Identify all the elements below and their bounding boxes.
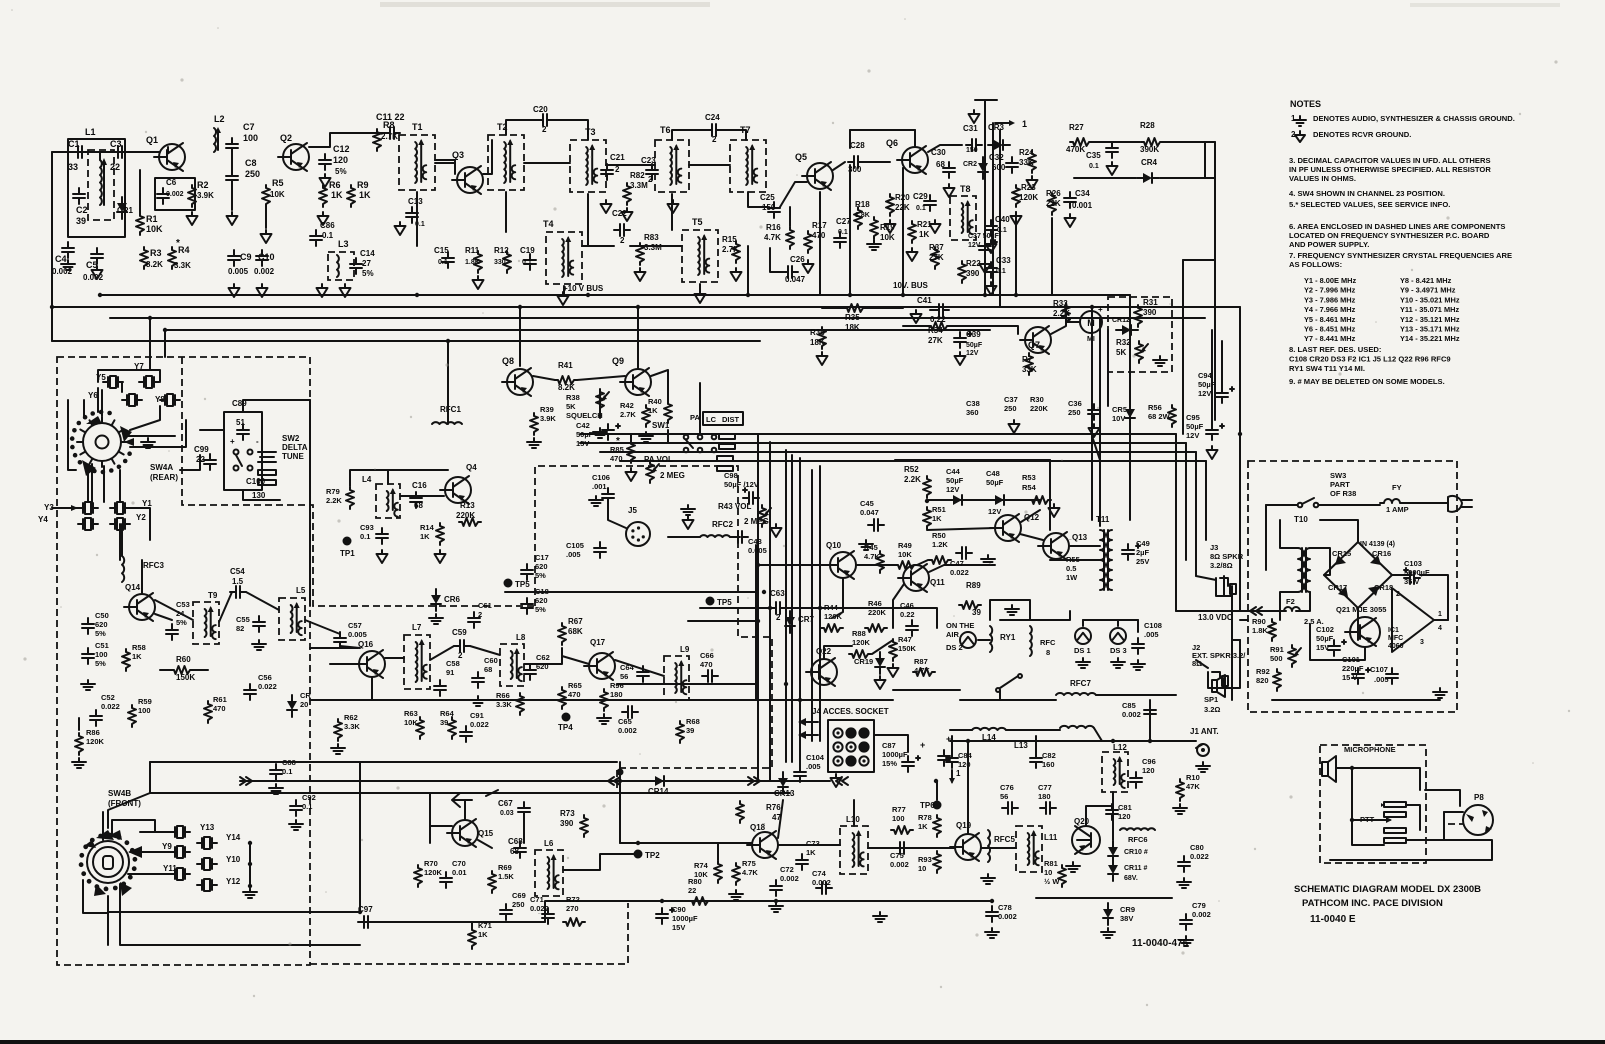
svg-text:100: 100	[892, 814, 905, 823]
svg-text:C26: C26	[790, 255, 805, 264]
svg-text:C11 22: C11 22	[376, 112, 405, 122]
svg-text:Q4: Q4	[466, 463, 477, 472]
svg-text:2: 2	[712, 135, 717, 144]
svg-text:C29: C29	[913, 192, 928, 201]
svg-text:NOTES: NOTES	[1290, 99, 1321, 109]
svg-text:DIST: DIST	[722, 415, 740, 424]
svg-text:0.002: 0.002	[890, 860, 909, 869]
svg-text:1K: 1K	[806, 848, 816, 857]
svg-text:C12: C12	[333, 144, 350, 154]
svg-text:C45: C45	[860, 499, 874, 508]
svg-text:5%: 5%	[362, 269, 374, 278]
svg-text:8.2K: 8.2K	[558, 383, 575, 392]
svg-text:56: 56	[1000, 792, 1008, 801]
svg-text:C58: C58	[446, 659, 460, 668]
svg-text:Y1 - 8.00E MHz: Y1 - 8.00E MHz	[1304, 276, 1356, 285]
svg-text:5%: 5%	[95, 629, 106, 638]
svg-text:K71: K71	[478, 921, 492, 930]
svg-text:CR16: CR16	[1372, 549, 1391, 558]
svg-text:4: 4	[1438, 625, 1442, 632]
svg-text:AIR: AIR	[946, 630, 960, 639]
svg-text:R2: R2	[197, 180, 209, 190]
svg-text:C24: C24	[705, 113, 720, 122]
svg-text:1K: 1K	[331, 190, 343, 200]
svg-text:R86: R86	[86, 728, 100, 737]
svg-text:SW3: SW3	[1330, 471, 1346, 480]
svg-text:C51: C51	[95, 641, 109, 650]
svg-text:R56: R56	[1148, 403, 1162, 412]
svg-text:C27: C27	[836, 217, 851, 226]
svg-text:4.7K: 4.7K	[764, 233, 781, 242]
svg-text:Y6 - 8.451 MHz: Y6 - 8.451 MHz	[1304, 325, 1356, 334]
svg-text:2: 2	[776, 613, 781, 622]
svg-text:C37 50µF: C37 50µF	[968, 233, 1000, 240]
svg-text:1.8K: 1.8K	[1252, 626, 1268, 635]
svg-text:10V: 10V	[1112, 414, 1125, 423]
svg-text:0.1: 0.1	[322, 231, 334, 240]
svg-text:R43 VOL: R43 VOL	[718, 502, 751, 511]
svg-text:DS 1: DS 1	[1074, 646, 1091, 655]
svg-text:220K: 220K	[868, 608, 887, 617]
svg-text:1W: 1W	[1066, 573, 1078, 582]
svg-text:2.2K: 2.2K	[904, 475, 921, 484]
svg-text:+: +	[230, 437, 235, 446]
svg-text:38V: 38V	[1120, 914, 1133, 923]
svg-text:Y10: Y10	[226, 855, 241, 864]
svg-text:1: 1	[956, 769, 961, 778]
svg-text:RFC2: RFC2	[712, 520, 733, 529]
svg-text:C34: C34	[1075, 189, 1090, 198]
svg-text:5%: 5%	[535, 605, 546, 614]
svg-text:250: 250	[512, 900, 525, 909]
svg-text:12V: 12V	[1198, 389, 1211, 398]
svg-text:R39: R39	[540, 405, 554, 414]
svg-text:390: 390	[1143, 308, 1157, 317]
svg-text:CR2: CR2	[963, 161, 977, 168]
svg-text:C4: C4	[55, 254, 67, 264]
svg-text:1.8K: 1.8K	[465, 259, 480, 266]
svg-text:T10: T10	[1294, 515, 1308, 524]
svg-text:C37: C37	[1004, 395, 1018, 404]
svg-text:150K: 150K	[176, 673, 195, 682]
svg-text:R42: R42	[620, 401, 634, 410]
svg-text:Y6: Y6	[88, 391, 98, 400]
svg-text:L2: L2	[214, 114, 225, 124]
svg-text:R5: R5	[272, 178, 284, 188]
svg-text:9. # MAY BE DELETED ON SOME M: 9. # MAY BE DELETED ON SOME MODELS.	[1289, 377, 1445, 386]
svg-text:18K: 18K	[810, 338, 825, 347]
svg-text:L4: L4	[362, 475, 372, 484]
svg-text:C93: C93	[360, 523, 374, 532]
svg-text:1.5: 1.5	[232, 577, 244, 586]
svg-text:Y10 - 35.021 MHz: Y10 - 35.021 MHz	[1400, 295, 1460, 304]
svg-text:R53: R53	[1022, 473, 1036, 482]
svg-text:100: 100	[95, 650, 108, 659]
svg-text:C103: C103	[1404, 559, 1422, 568]
svg-text:C77: C77	[1038, 783, 1052, 792]
svg-text:180: 180	[610, 690, 623, 699]
svg-text:22: 22	[110, 162, 120, 172]
svg-text:250: 250	[1068, 408, 1081, 417]
svg-text:22K: 22K	[1046, 199, 1061, 208]
svg-text:RFC1: RFC1	[440, 405, 461, 414]
svg-text:R66: R66	[496, 691, 510, 700]
svg-text:1K: 1K	[918, 822, 928, 831]
svg-text:100: 100	[243, 133, 258, 143]
svg-text:C94: C94	[1198, 371, 1213, 380]
svg-text:Y4 - 7.966 MHz: Y4 - 7.966 MHz	[1304, 305, 1356, 314]
svg-text:8.2K: 8.2K	[146, 260, 163, 269]
svg-text:470: 470	[213, 704, 226, 713]
svg-text:3.3K: 3.3K	[174, 261, 191, 270]
svg-text:DENOTES RCVR GROUND.: DENOTES RCVR GROUND.	[1313, 130, 1411, 139]
svg-text:L8: L8	[516, 633, 526, 642]
svg-text:Q6: Q6	[886, 138, 898, 148]
svg-text:27K: 27K	[928, 336, 943, 345]
svg-text:R79: R79	[326, 487, 340, 496]
svg-text:IN 4139 (4): IN 4139 (4)	[1360, 541, 1395, 548]
svg-text:68: 68	[936, 160, 945, 169]
svg-text:ON THE: ON THE	[946, 621, 974, 630]
svg-text:T4: T4	[543, 219, 554, 229]
svg-text:10K: 10K	[404, 718, 418, 727]
svg-text:120K: 120K	[424, 868, 443, 877]
svg-text:250: 250	[245, 169, 260, 179]
svg-text:130: 130	[252, 491, 266, 500]
svg-text:C100: C100	[246, 477, 266, 486]
svg-text:620: 620	[95, 620, 108, 629]
svg-text:2: 2	[615, 165, 620, 174]
svg-text:C21: C21	[610, 153, 625, 162]
svg-text:1K: 1K	[132, 652, 142, 661]
svg-text:3.2/8Ω: 3.2/8Ω	[1210, 561, 1233, 570]
svg-text:3.9K: 3.9K	[197, 191, 214, 200]
svg-text:0.1: 0.1	[282, 767, 292, 776]
svg-text:Y14 - 35.221 MHz: Y14 - 35.221 MHz	[1400, 334, 1460, 343]
svg-text:R51: R51	[932, 505, 946, 514]
svg-text:1K: 1K	[932, 514, 942, 523]
svg-text:13.0 VDC: 13.0 VDC	[1198, 613, 1233, 622]
svg-text:3.3K: 3.3K	[496, 700, 512, 709]
svg-text:68: 68	[414, 501, 423, 510]
svg-text:0.022: 0.022	[101, 702, 120, 711]
svg-text:C40: C40	[995, 215, 1010, 224]
svg-text:T9: T9	[208, 591, 218, 600]
svg-text:8: 8	[1046, 648, 1050, 657]
svg-text:TP4: TP4	[558, 723, 573, 732]
svg-text:C81: C81	[1118, 803, 1132, 812]
svg-text:F2: F2	[1286, 597, 1295, 606]
svg-text:20: 20	[300, 700, 308, 709]
svg-text:Q11: Q11	[930, 578, 945, 587]
svg-text:C31: C31	[963, 124, 978, 133]
svg-text:22K: 22K	[895, 203, 910, 212]
svg-text:100: 100	[138, 706, 151, 715]
svg-text:R73: R73	[560, 809, 575, 818]
svg-text:C79: C79	[1192, 901, 1206, 910]
svg-text:1K: 1K	[420, 532, 430, 541]
svg-text:DELTA: DELTA	[282, 443, 308, 452]
svg-text:C17: C17	[535, 553, 549, 562]
svg-text:R63: R63	[404, 709, 418, 718]
svg-text:LOCATED ON FREQUENCY SYNTHESIZ: LOCATED ON FREQUENCY SYNTHESIZER P.C. BO…	[1289, 231, 1490, 240]
svg-text:4060: 4060	[1388, 643, 1404, 650]
svg-text:68: 68	[510, 847, 519, 856]
svg-text:R65: R65	[568, 681, 582, 690]
svg-text:VALUES IN OHMS.: VALUES IN OHMS.	[1289, 174, 1356, 183]
svg-text:3.9K: 3.9K	[540, 414, 556, 423]
svg-text:TP5: TP5	[515, 580, 530, 589]
svg-text:18K: 18K	[845, 323, 860, 332]
svg-text:C61: C61	[478, 601, 492, 610]
svg-text:12V: 12V	[1186, 431, 1199, 440]
svg-text:IN PF UNLESS OTHERWISE SPECIFI: IN PF UNLESS OTHERWISE SPECIFIED. ALL RE…	[1289, 165, 1491, 174]
svg-text:470: 470	[568, 690, 581, 699]
svg-text:1K: 1K	[478, 930, 488, 939]
svg-text:C86: C86	[320, 221, 335, 230]
svg-text:50µF: 50µF	[946, 476, 964, 485]
svg-text:C13: C13	[408, 197, 423, 206]
svg-text:0.005: 0.005	[228, 267, 249, 276]
svg-text:56: 56	[620, 672, 628, 681]
svg-text:0.047: 0.047	[785, 275, 806, 284]
svg-text:C80: C80	[1190, 843, 1204, 852]
svg-text:Q20: Q20	[1074, 817, 1090, 826]
svg-text:68 2W: 68 2W	[1148, 412, 1171, 421]
svg-text:1 AMP: 1 AMP	[1386, 505, 1409, 514]
svg-text:15%: 15%	[882, 759, 897, 768]
svg-text:R31: R31	[1143, 298, 1158, 307]
svg-text:PATHCOM INC. PACE DIVISION: PATHCOM INC. PACE DIVISION	[1302, 898, 1443, 909]
svg-text:390: 390	[966, 269, 980, 278]
svg-text:C48: C48	[986, 469, 1000, 478]
svg-text:5K: 5K	[1116, 348, 1126, 357]
svg-text:C6: C6	[166, 178, 177, 187]
svg-text:0.002: 0.002	[618, 726, 637, 735]
svg-text:Q2: Q2	[280, 133, 292, 143]
svg-text:AS FOLLOWS:: AS FOLLOWS:	[1289, 260, 1342, 269]
svg-text:Q3: Q3	[452, 150, 464, 160]
svg-text:Q9: Q9	[612, 356, 624, 366]
svg-text:C69: C69	[512, 891, 526, 900]
svg-text:10: 10	[1044, 868, 1052, 877]
svg-text:5%: 5%	[335, 167, 347, 176]
svg-text:L3: L3	[338, 239, 349, 249]
svg-text:470: 470	[700, 660, 713, 669]
svg-text:R58: R58	[132, 643, 146, 652]
svg-text:C41: C41	[917, 296, 932, 305]
svg-text:R72: R72	[566, 895, 580, 904]
svg-text:R83: R83	[644, 233, 659, 242]
svg-text:C66: C66	[700, 651, 714, 660]
svg-text:C107: C107	[1370, 665, 1388, 674]
svg-text:J1 ANT.: J1 ANT.	[1190, 727, 1219, 736]
svg-text:0.03: 0.03	[500, 810, 514, 817]
svg-text:+: +	[946, 734, 951, 744]
svg-text:R85: R85	[610, 445, 624, 454]
svg-text:CR13: CR13	[774, 789, 795, 798]
svg-text:SQUELCH: SQUELCH	[566, 411, 603, 420]
svg-text:CR10 #: CR10 #	[1124, 849, 1148, 856]
svg-text:PA: PA	[690, 413, 700, 422]
svg-text:0.002: 0.002	[1192, 910, 1211, 919]
svg-text:Y1: Y1	[142, 499, 152, 508]
svg-text:0.047: 0.047	[860, 508, 879, 517]
svg-text:390K: 390K	[1140, 145, 1159, 154]
svg-text:C70: C70	[452, 859, 466, 868]
svg-text:MICROPHONE: MICROPHONE	[1344, 745, 1396, 754]
svg-text:R54: R54	[1022, 483, 1037, 492]
svg-text:470: 470	[610, 454, 623, 463]
svg-text:0.002: 0.002	[52, 267, 73, 276]
svg-text:C16: C16	[412, 481, 427, 490]
svg-text:50µF: 50µF	[1316, 634, 1334, 643]
svg-text:1.2K: 1.2K	[932, 540, 948, 549]
svg-text:R68: R68	[686, 717, 700, 726]
svg-text:27K: 27K	[929, 253, 944, 262]
svg-text:10K: 10K	[270, 190, 285, 199]
svg-text:50µF: 50µF	[986, 478, 1004, 487]
svg-text:600: 600	[992, 163, 1006, 172]
svg-text:50µF: 50µF	[966, 342, 983, 349]
svg-text:C63: C63	[770, 589, 785, 598]
svg-text:2: 2	[1291, 130, 1296, 139]
svg-text:RFC7: RFC7	[1070, 679, 1091, 688]
svg-text:L11: L11	[1044, 833, 1058, 842]
svg-text:0.22: 0.22	[930, 315, 946, 324]
svg-text:25V: 25V	[1136, 557, 1149, 566]
svg-text:L13: L13	[1014, 741, 1028, 750]
svg-text:R13: R13	[460, 501, 475, 510]
svg-text:39: 39	[440, 718, 448, 727]
svg-text:Q15: Q15	[478, 829, 494, 838]
svg-text:0.001: 0.001	[1072, 201, 1093, 210]
svg-text:C108 CR20 DS3 F2 IC1 J5 L12: C108 CR20 DS3 F2 IC1 J5 L12 Q22 R96 RFC9	[1289, 355, 1451, 364]
svg-text:R27: R27	[1069, 123, 1084, 132]
svg-text:.005: .005	[566, 550, 581, 559]
svg-text:0.022: 0.022	[530, 904, 549, 913]
svg-text:120K: 120K	[1019, 193, 1038, 202]
svg-text:P8: P8	[1474, 793, 1484, 802]
svg-text:SW1: SW1	[652, 421, 670, 430]
svg-text:39: 39	[972, 608, 981, 617]
svg-text:7. FREQUENCY SYNTHESIZER CRYST: 7. FREQUENCY SYNTHESIZER CRYSTAL FREQUEN…	[1289, 251, 1512, 260]
svg-text:91: 91	[446, 668, 454, 677]
svg-text:C55: C55	[236, 615, 250, 624]
svg-text:R59: R59	[138, 697, 152, 706]
svg-text:C104: C104	[806, 753, 825, 762]
svg-text:TP5: TP5	[717, 598, 732, 607]
svg-text:Q13b: Q13b	[1069, 539, 1072, 541]
svg-text:2: 2	[620, 236, 625, 245]
svg-text:T1: T1	[412, 122, 423, 132]
svg-text:27: 27	[362, 259, 371, 268]
svg-text:0.002: 0.002	[254, 267, 275, 276]
svg-text:Q14: Q14	[125, 583, 141, 592]
svg-text:CR5: CR5	[1112, 405, 1127, 414]
svg-text:RFC5: RFC5	[994, 835, 1015, 844]
svg-text:2.2K: 2.2K	[326, 496, 342, 505]
svg-text:0.5: 0.5	[1066, 564, 1076, 573]
svg-text:10K: 10K	[880, 233, 895, 242]
svg-text:C82: C82	[1042, 751, 1056, 760]
svg-text:C2: C2	[76, 205, 88, 215]
svg-text:C84: C84	[958, 751, 973, 760]
svg-text:C57: C57	[348, 621, 362, 630]
svg-text:RFC6: RFC6	[1128, 835, 1148, 844]
svg-text:R38: R38	[566, 393, 580, 402]
svg-text:RFC: RFC	[1040, 638, 1056, 647]
svg-text:1K: 1K	[919, 230, 929, 239]
svg-text:C108: C108	[1144, 621, 1162, 630]
svg-text:Y13: Y13	[200, 823, 215, 832]
svg-text:C8: C8	[245, 158, 257, 168]
svg-text:33: 33	[68, 162, 78, 172]
svg-text:R47: R47	[898, 635, 912, 644]
svg-text:C3: C3	[110, 139, 122, 149]
svg-text:120K: 120K	[86, 737, 105, 746]
svg-text:Y8 - 8.421 MHz: Y8 - 8.421 MHz	[1400, 276, 1452, 285]
svg-text:5%: 5%	[95, 659, 106, 668]
svg-text:Q21 MJE 3055: Q21 MJE 3055	[1336, 605, 1386, 614]
svg-text:C5: C5	[86, 260, 98, 270]
svg-text:5%: 5%	[176, 618, 187, 627]
svg-text:5K: 5K	[566, 402, 576, 411]
svg-text:CR6: CR6	[444, 595, 461, 604]
svg-text:T3: T3	[585, 127, 596, 137]
svg-text:12V: 12V	[968, 242, 981, 249]
svg-text:T7: T7	[740, 125, 751, 135]
svg-text:12V: 12V	[946, 485, 959, 494]
svg-text:R40: R40	[648, 397, 662, 406]
svg-text:C65: C65	[618, 717, 632, 726]
svg-text:J4 ACCES. SOCKET: J4 ACCES. SOCKET	[812, 707, 889, 716]
svg-text:0.1: 0.1	[838, 229, 848, 236]
svg-text:C23: C23	[641, 156, 656, 165]
svg-text:TP6: TP6	[920, 801, 935, 810]
svg-text:68V.: 68V.	[1124, 875, 1138, 882]
svg-text:Q7: Q7	[1028, 340, 1040, 350]
svg-text:2.7K: 2.7K	[722, 245, 739, 254]
svg-text:2: 2	[542, 125, 547, 134]
svg-text:0.01: 0.01	[452, 868, 467, 877]
svg-text:Q1: Q1	[146, 135, 158, 145]
svg-text:C50: C50	[95, 611, 109, 620]
svg-text:C44: C44	[946, 467, 961, 476]
svg-text:0.22: 0.22	[900, 610, 915, 619]
svg-text:C60: C60	[484, 656, 498, 665]
svg-text:330: 330	[494, 259, 506, 266]
svg-text:L9: L9	[680, 645, 690, 654]
svg-text:DENOTES AUDIO, SYNTHESIZER & C: DENOTES AUDIO, SYNTHESIZER & CHASSIS GRO…	[1313, 114, 1515, 123]
svg-text:11-0040 E: 11-0040 E	[1310, 914, 1356, 925]
svg-text:MI: MI	[1087, 336, 1095, 343]
svg-text:3.3M: 3.3M	[630, 181, 648, 190]
svg-text:R28: R28	[1140, 121, 1155, 130]
svg-text:LC: LC	[706, 415, 717, 424]
svg-text:R9: R9	[357, 180, 369, 190]
svg-text:C54: C54	[230, 567, 245, 576]
svg-text:C105: C105	[566, 541, 584, 550]
svg-text:T5: T5	[692, 217, 703, 227]
svg-text:C20: C20	[533, 105, 548, 114]
svg-text:Y13 - 35.171 MHz: Y13 - 35.171 MHz	[1400, 325, 1460, 334]
svg-text:C74: C74	[812, 869, 827, 878]
svg-text:0.002: 0.002	[780, 874, 799, 883]
svg-text:6. AREA ENCLOSED IN DASHED LIN: 6. AREA ENCLOSED IN DASHED LINES ARE COM…	[1289, 222, 1505, 231]
svg-text:Y12: Y12	[226, 877, 241, 886]
svg-text:4.7K: 4.7K	[742, 868, 758, 877]
